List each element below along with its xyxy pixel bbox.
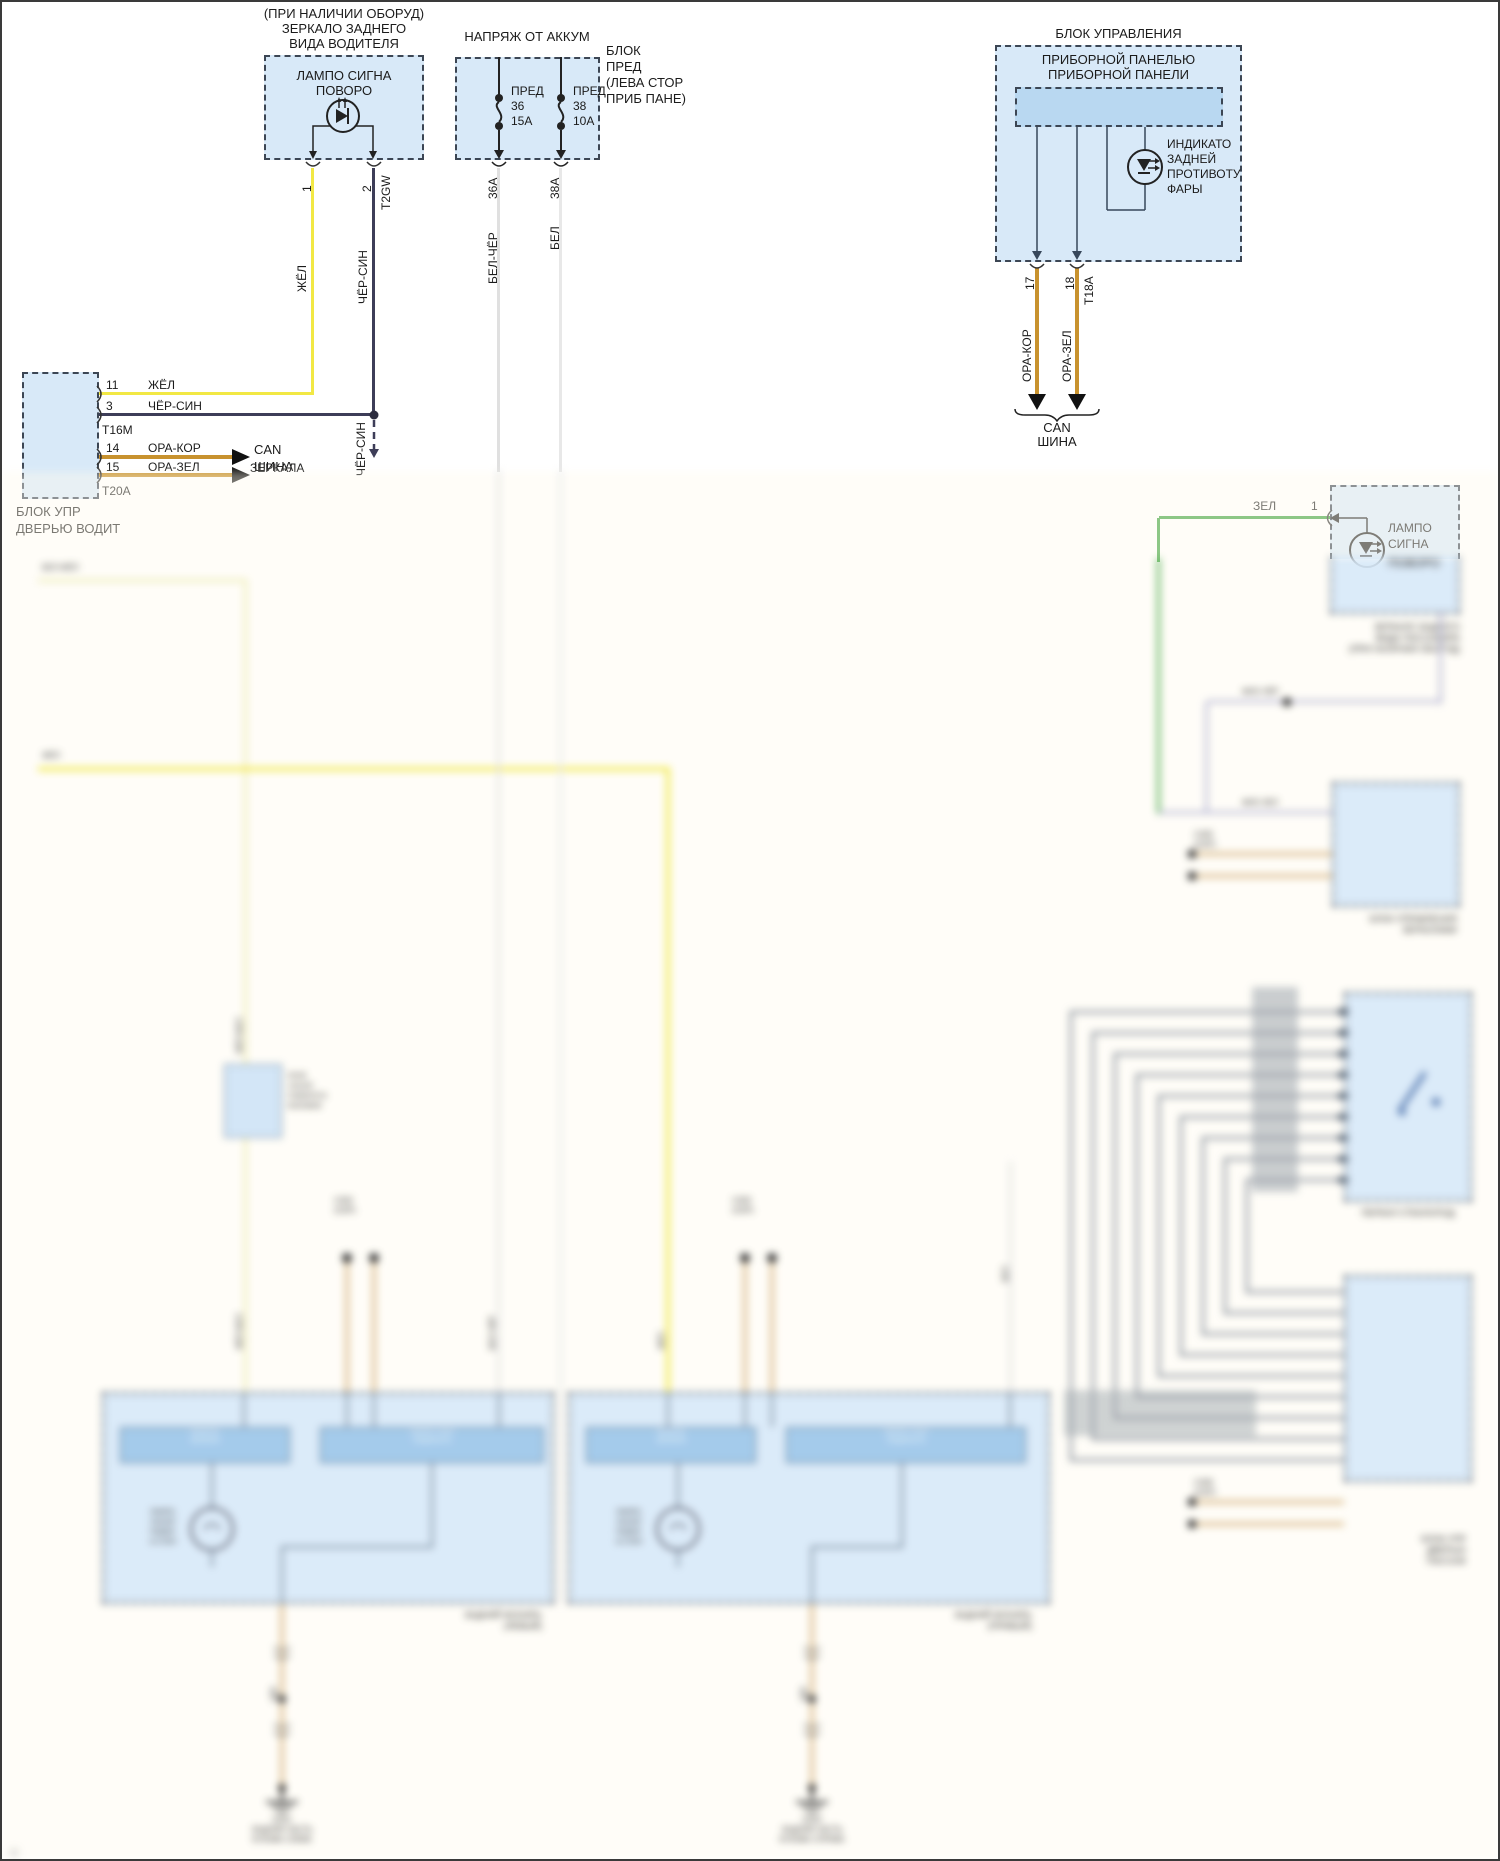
rear-lamp-left-bar1: МОДУЛЬ ФОНАРЯ [120,1427,290,1463]
blurred-diagram-area: БЕЛ-ЖЁЛ ЖЁЛ-БЕЛ ЖЁЛ-БЕЛ РЕЛЕ УКАЗАТ ПОВО… [2,2,1498,1859]
wire-tan-h [1190,1500,1344,1504]
wire-tan [743,1254,747,1392]
wire-label: ЖЁЛ [42,751,60,761]
connector-label: С406 [1194,1478,1213,1488]
bar-text: МОДУЛЬ [587,1428,755,1437]
lamp-side-text: ПОВОР [616,1528,641,1537]
mirror-module-name: ЗЕРКАЛАМИ [1342,925,1457,936]
wire-tan-h [1190,852,1332,856]
wire-yellow-h2 [38,767,670,771]
ground-label: КУЗОВА СПРАВА [762,1835,862,1845]
harness-connector-band-h [1064,1390,1256,1436]
wire-white-cont [559,470,562,1604]
bar-text: ФОНАРЯ [121,1437,289,1446]
mirror-control-module-box [1332,782,1460,907]
bar-text: ФОНАРЯ [587,1437,755,1446]
side-repeater-component [224,1064,282,1138]
connector-label: (СЕР) [1194,1488,1216,1498]
wire-pale-yellow-v [244,579,247,1392]
wire-yellow-v2 [666,767,670,1392]
rear-lamp-left-name: ЗАДНИЙ ФОНАРЬ [362,1610,542,1621]
bar-text: ЛАМПА УКАЗ [787,1428,1025,1437]
ground-label: КУЗОВА СЛЕВА [232,1835,332,1845]
wire-lavender-h1 [1207,700,1442,703]
passenger-mirror-name: ЗЕРКАЛО ЗАДНЕГО [1340,622,1460,633]
bar-text: ЛАМПА УКАЗ [321,1428,543,1437]
lamp-side-text: ПОВОР [150,1528,175,1537]
rear-lamp-right-name: (ПРАВЫЙ) [762,1621,1032,1632]
wire-tan [770,1254,774,1392]
component-label: РЕЛЕ [288,1072,307,1081]
wire-label: ЧЁР [800,1686,810,1702]
lamp-side-text: ЛАМПА [150,1508,175,1517]
ground-label: G402 [777,1815,847,1825]
lamp-side-text: УКАЗАТ [616,1518,642,1527]
wire-white-black-cont [497,470,500,1392]
bar-text: ПОВОРОТА [787,1437,1025,1446]
component-label: УКАЗАТ [288,1082,314,1091]
harness-connector-band-v [1252,987,1298,1192]
wire-label: ФИО-ЧЁР [1242,687,1279,697]
wire-tan [372,1254,376,1392]
wire-label: ФИО-ЗЕЛ [1242,798,1278,808]
rear-lamp-right-bar1: МОДУЛЬ ФОНАРЯ [586,1427,756,1463]
wire-lavender-h2 [1159,811,1332,814]
wire-label: ЖЁЛ-БЕЛ [235,1018,245,1054]
wire-green-cont [1157,558,1160,814]
wire-label: БЕЛ-ЖЁЛ [42,563,78,573]
passenger-door-module-name: БЛОК УПР [1354,1534,1466,1545]
bar-text: МОДУЛЬ [121,1428,289,1437]
rear-lamp-right-box [568,1392,1050,1604]
component-label: ПОВОРОТА [288,1092,327,1101]
connector-label: С405 [1194,830,1213,840]
ground-wire-right [810,1604,814,1794]
lamp-side-text: И СТОП [616,1538,642,1547]
window-switch-box [1344,992,1472,1202]
connector-label: С303 [732,1196,751,1206]
wire-tan [345,1254,349,1392]
wire-label: ЖЁЛ [657,1332,667,1350]
wire-tan-h [1190,1522,1344,1526]
watermark: © [10,1846,19,1860]
passenger-door-module-box [1344,1275,1472,1482]
wire-label: ЖЁЛ-БЕЛ [235,1314,245,1350]
passenger-mirror-name: ВИДА ПАССАЖИРА [1340,633,1460,644]
ground-wire-left [280,1604,284,1794]
rear-lamp-left-name: (ЛЕВЫЙ) [362,1621,542,1632]
ground-label: ЗАДНЯЯ ЧАСТЬ [762,1825,862,1835]
wire-lavender-v1 [1439,612,1442,704]
wire-label: БЕЛ [1001,1266,1011,1282]
wire-pale-yellow-h1 [38,579,246,582]
connector-label: (СЕР) [1194,840,1216,850]
connector-label: (СЕР) [334,1206,356,1216]
wire-label: ЧЁР [270,1686,280,1702]
rear-lamp-left-box [102,1392,554,1604]
wire-label: БЕЛ-ЧЁР [488,1315,498,1350]
component-label: БОКОВОЕ [288,1102,322,1111]
connector-label: С302 [334,1196,353,1206]
ground-label: G401 [247,1815,317,1825]
passenger-lamp-label: ПОВОРО [1388,556,1440,570]
mirror-module-name: БЛОК УПРАВЛЕНИЯ [1342,914,1457,925]
bar-text: ПОВОРОТА [321,1437,543,1446]
ground-label: ЗАДНЯЯ ЧАСТЬ [232,1825,332,1835]
passenger-door-module-name: ДВЕРЬЮ [1354,1545,1466,1556]
wire-tan-h [1190,874,1332,878]
passenger-mirror-name: (ПРИ НАЛИЧИИ ОБОРУД) [1340,644,1460,655]
lamp-side-text: И СТОП [150,1538,176,1547]
passenger-door-module-name: ПАССАЖ [1354,1556,1466,1567]
rear-lamp-right-name: ЗАДНИЙ ФОНАРЬ [762,1610,1032,1621]
lamp-side-text: УКАЗАТ [150,1518,176,1527]
wiring-diagram-page: (ПРИ НАЛИЧИИ ОБОРУД) ЗЕРКАЛО ЗАДНЕГО ВИД… [0,0,1500,1861]
rear-lamp-right-bar2: ЛАМПА УКАЗ ПОВОРОТА [786,1427,1026,1463]
wire-lavender-v2 [1205,702,1208,814]
connector-label: (СЕР) [732,1206,754,1216]
window-switch-name: ПЕРЕКЛ СТЕКЛОПОД [1347,1208,1469,1219]
lamp-side-text: ЛАМПА [616,1508,641,1517]
rear-lamp-left-bar2: ЛАМПА УКАЗ ПОВОРОТА [320,1427,544,1463]
